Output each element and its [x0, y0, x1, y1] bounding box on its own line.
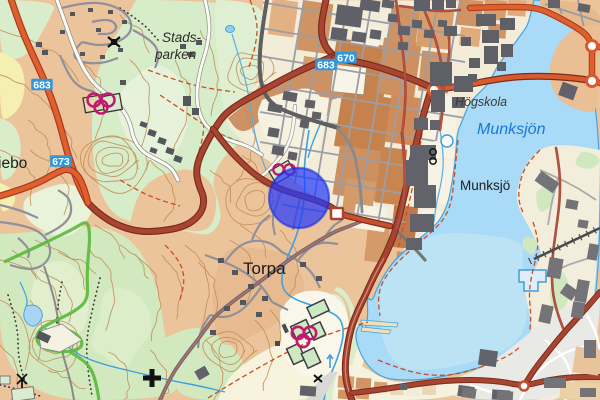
svg-text:Munksjön: Munksjön	[477, 121, 546, 138]
svg-text:683: 683	[317, 59, 335, 71]
svg-text:Torpa: Torpa	[243, 259, 286, 278]
svg-text:673: 673	[52, 156, 70, 168]
svg-text:iebo: iebo	[0, 155, 27, 172]
svg-text:parken: parken	[154, 47, 196, 62]
svg-text:Stads-: Stads-	[162, 30, 202, 45]
svg-text:Munksjö: Munksjö	[460, 178, 510, 193]
svg-text:670: 670	[337, 52, 355, 64]
svg-text:683: 683	[33, 79, 51, 91]
svg-text:Högskola: Högskola	[455, 95, 507, 109]
